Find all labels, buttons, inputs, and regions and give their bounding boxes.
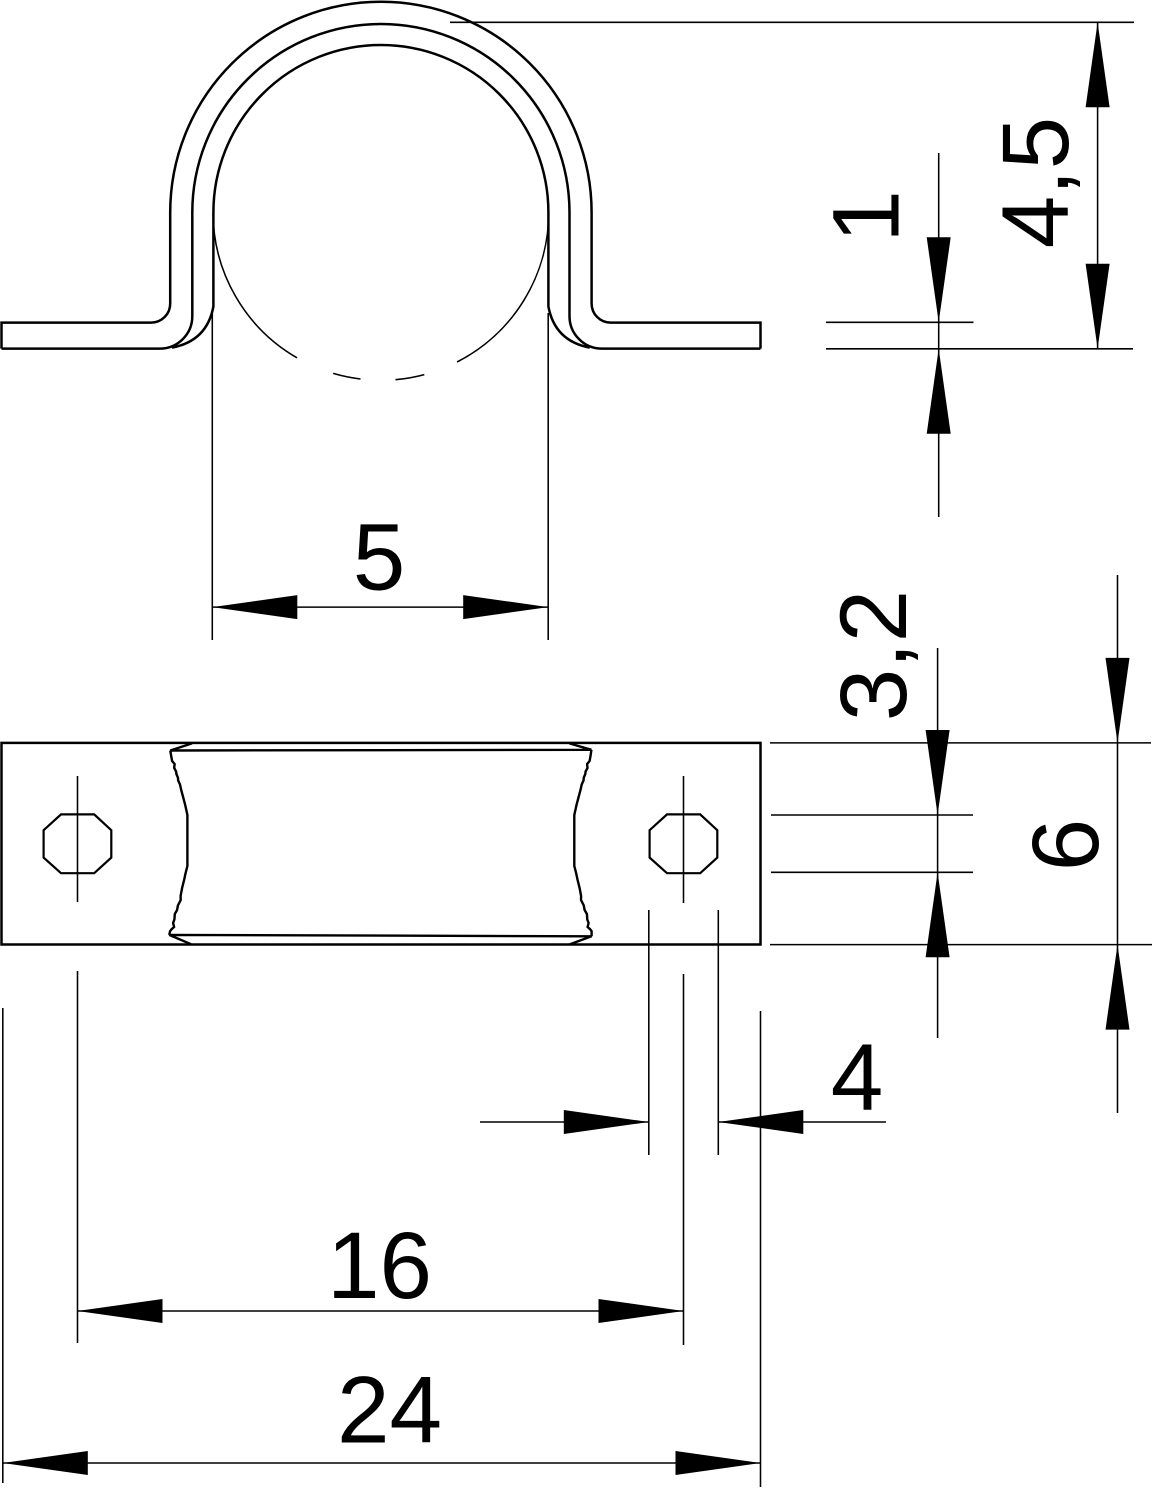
svg-text:16: 16 — [327, 1213, 432, 1319]
svg-text:1: 1 — [814, 190, 920, 243]
svg-text:3,2: 3,2 — [821, 590, 927, 721]
svg-text:6: 6 — [1013, 819, 1119, 872]
svg-text:24: 24 — [337, 1358, 442, 1464]
svg-text:5: 5 — [353, 505, 406, 611]
svg-text:4: 4 — [831, 1025, 884, 1131]
svg-text:4,5: 4,5 — [983, 117, 1089, 248]
